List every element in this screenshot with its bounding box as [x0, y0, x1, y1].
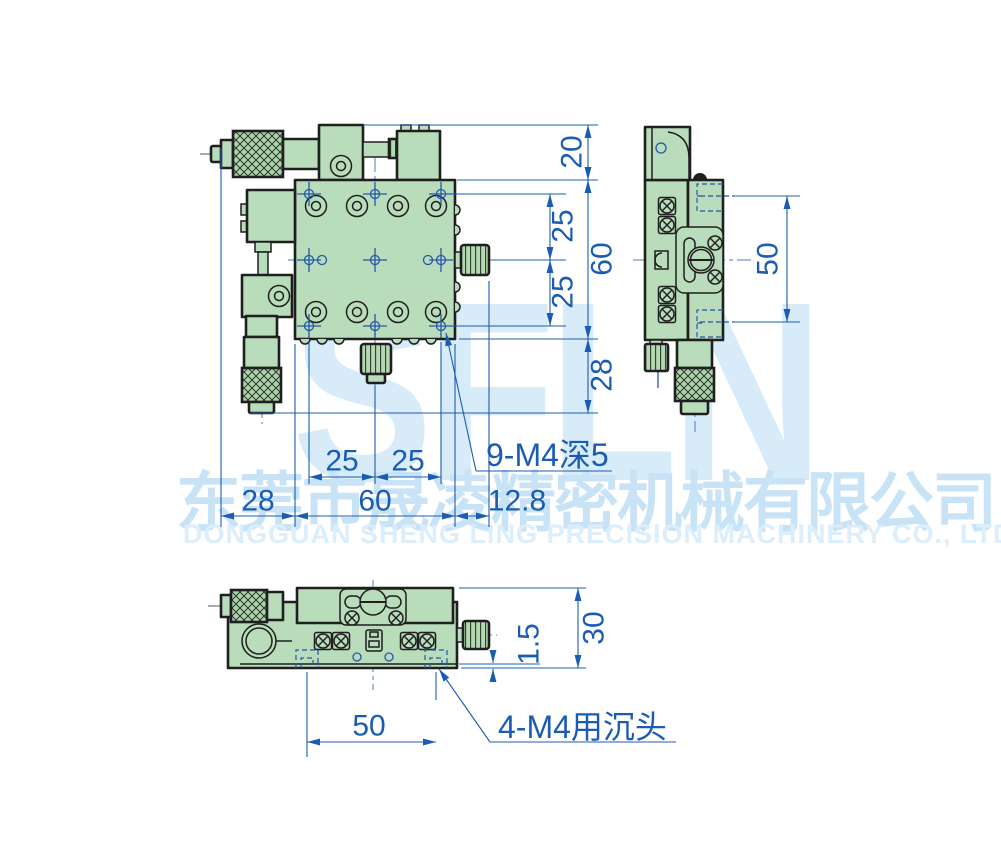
side-bottom-knob — [645, 340, 668, 371]
side-top-bracket — [645, 127, 690, 180]
bottom-center-widget — [366, 630, 382, 651]
dim-bottom-countersink-span: 50 — [352, 710, 385, 743]
dim-front-hole-pitch-upper: 25 — [547, 209, 580, 242]
stage-top-plate — [295, 180, 460, 344]
dim-side-platform-hole-span: 50 — [752, 242, 785, 275]
y-micrometer-knurled-thimble — [242, 368, 281, 402]
technical-drawing: 20 25 60 25 28 25 25 28 60 12.8 — [0, 0, 1001, 853]
dim-front-hole-pitch-lower: 25 — [547, 275, 580, 308]
callout-9-m4-depth5: 9-M4深5 — [486, 437, 609, 473]
dim-front-base-drop: 28 — [586, 358, 619, 391]
y-axis-micrometer — [241, 190, 295, 413]
tapped-holes-callout: 9-M4深5 — [446, 333, 612, 473]
bottom-view — [208, 580, 497, 690]
bottom-center-plate — [340, 589, 406, 625]
bottom-right-knob — [457, 621, 489, 649]
dim-bottom-overall-height: 30 — [578, 611, 611, 644]
dim-front-left-overhang: 28 — [241, 485, 274, 518]
dim-front-hole-pitch-left: 25 — [325, 445, 358, 478]
dim-front-body-width: 60 — [358, 485, 391, 518]
callout-4-m4-countersunk: 4-M4用沉头 — [498, 709, 667, 745]
countersink-callout: 4-M4用沉头 — [439, 669, 676, 745]
x-micrometer-knurled-thimble — [233, 131, 283, 177]
dim-bottom-base-lip: 1.5 — [513, 623, 546, 665]
side-clamp-widget — [655, 251, 668, 269]
dim-front-hole-pitch-right: 25 — [391, 445, 424, 478]
bottom-left-micrometer — [221, 590, 283, 622]
dim-front-body-height: 60 — [586, 242, 619, 275]
top-stage-block — [397, 125, 440, 180]
x-axis-micrometer — [211, 125, 399, 180]
right-adjust-knob — [455, 245, 489, 275]
dim-front-top-block-height: 20 — [556, 135, 589, 168]
drawing-canvas: SFLN 东莞市晟凌精密机械有限公司 DONGGUAN SHENG LING P… — [0, 0, 1001, 853]
side-micrometer — [675, 340, 714, 414]
side-center-plate — [676, 227, 723, 293]
dim-front-knob-overhang: 12.8 — [488, 485, 546, 518]
bottom-adjust-knob — [361, 344, 391, 383]
side-view — [633, 127, 753, 432]
front-view — [200, 125, 505, 424]
